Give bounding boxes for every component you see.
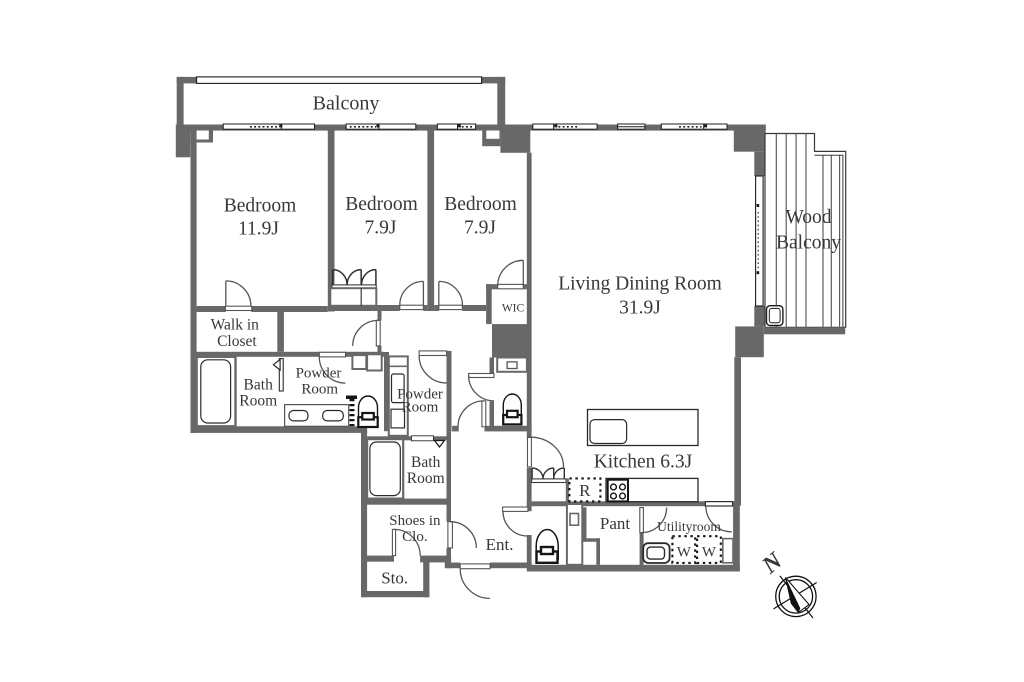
svg-text:Wood: Wood [785, 207, 831, 228]
svg-text:Balcony: Balcony [313, 93, 380, 115]
svg-text:Bedroom: Bedroom [224, 196, 297, 217]
svg-text:Room: Room [239, 392, 277, 409]
svg-text:Room: Room [402, 400, 439, 416]
svg-text:R: R [579, 481, 591, 500]
svg-text:Balcony: Balcony [776, 233, 841, 254]
svg-text:31.9J: 31.9J [619, 298, 661, 319]
svg-text:7.9J: 7.9J [365, 218, 397, 239]
svg-text:Kitchen 6.3J: Kitchen 6.3J [594, 452, 693, 473]
svg-text:Bath: Bath [244, 377, 274, 394]
svg-text:Living Dining Room: Living Dining Room [558, 274, 722, 295]
svg-text:Room: Room [407, 470, 445, 487]
svg-text:Bedroom: Bedroom [444, 194, 517, 215]
svg-text:Pant: Pant [600, 514, 631, 533]
svg-text:WIC: WIC [502, 303, 525, 315]
svg-text:Powder: Powder [296, 366, 342, 382]
svg-text:Bedroom: Bedroom [345, 194, 418, 215]
svg-text:W: W [702, 545, 717, 561]
svg-text:Ent.: Ent. [486, 535, 514, 554]
svg-text:Walk in: Walk in [211, 317, 260, 334]
svg-text:Sto.: Sto. [381, 569, 408, 588]
svg-text:11.9J: 11.9J [238, 219, 279, 240]
svg-text:Shoes in: Shoes in [389, 513, 441, 529]
svg-text:Bath: Bath [411, 454, 441, 471]
svg-text:Clo.: Clo. [402, 529, 427, 545]
svg-text:W: W [677, 545, 692, 561]
svg-text:7.9J: 7.9J [464, 218, 496, 239]
svg-text:Closet: Closet [217, 333, 257, 350]
svg-text:Utilityroom: Utilityroom [657, 519, 721, 534]
svg-text:Room: Room [301, 381, 338, 397]
